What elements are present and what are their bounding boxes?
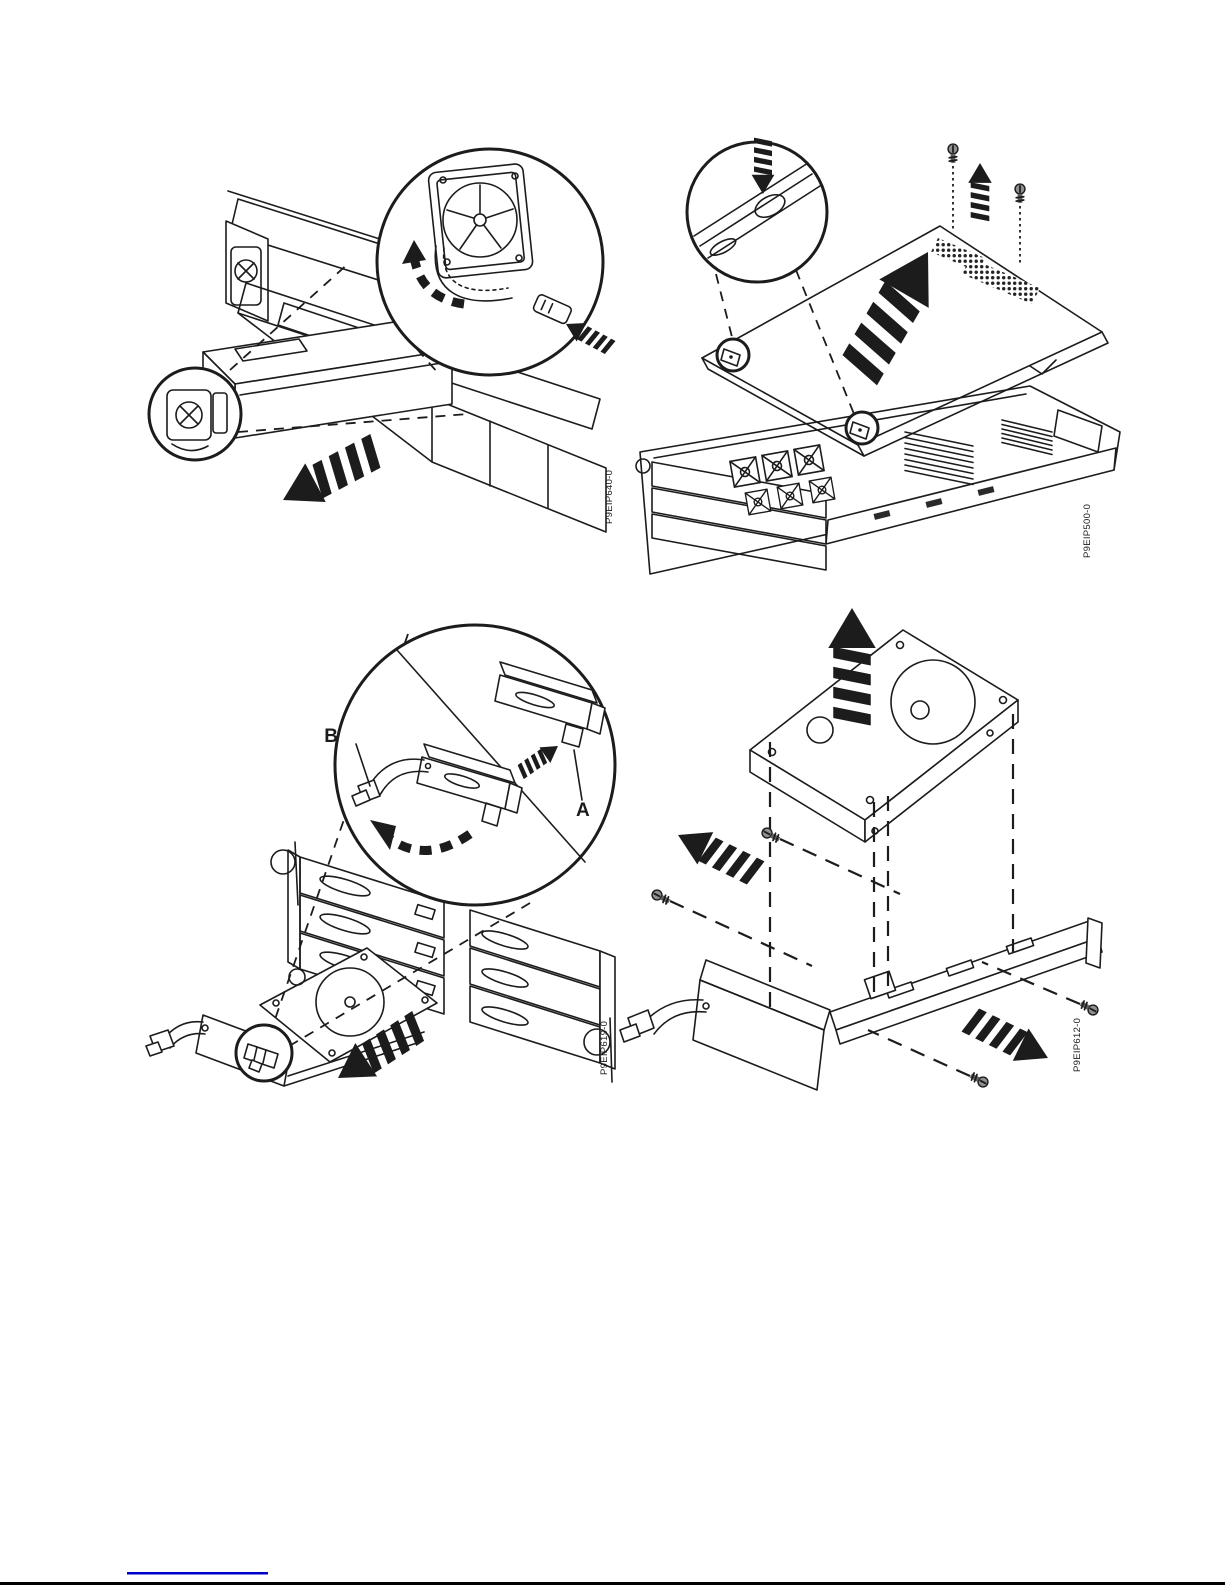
screw-icon [948, 144, 958, 163]
fan-icon [777, 483, 803, 509]
fan-icon [730, 457, 760, 487]
footer-link-line[interactable] [127, 1572, 268, 1575]
screw-icon [969, 1071, 990, 1089]
latch-highlight-circle [236, 1025, 292, 1081]
figure-id-label: P9EIP500-0 [1082, 504, 1093, 558]
callout-dashed-line [796, 270, 854, 414]
carrier-side-rail [830, 920, 1098, 1030]
cover-button-highlight-circle [717, 339, 749, 371]
drive-carrier-tray [620, 918, 1102, 1090]
screw-icon [760, 826, 781, 844]
screw-dashed-line [670, 901, 812, 966]
cover-button-highlight-circle [846, 412, 878, 444]
callout-dashed-line [716, 274, 733, 341]
drive-cage-grille [432, 398, 606, 532]
ac-inlet-icon [213, 393, 227, 433]
psu-handle-magnifier-circle [377, 149, 617, 375]
fan-icon [762, 451, 792, 481]
figure-id-label: P9EIP612-0 [1072, 1018, 1083, 1072]
figure-cover-removal: P9EIP500-0 [636, 138, 1120, 574]
screw-icon [650, 888, 671, 906]
cover-notch [1030, 360, 1056, 374]
disk-drive [750, 630, 1018, 842]
figure-id-label: P9EIP619-0 [599, 1021, 610, 1075]
cover-button-magnifier-circle [687, 138, 827, 282]
psu-rear-detail-circle [149, 368, 241, 460]
screw-icon [1079, 999, 1100, 1017]
screw-icon [1015, 184, 1025, 203]
fan-icon [745, 489, 771, 515]
figure-drive-carrier: P9EIP612-0 [620, 608, 1102, 1090]
callout-b-label: B [324, 726, 338, 747]
figure-drive-removal: A B P9EIP619-0 [146, 625, 615, 1095]
screw-removal-arrow [670, 819, 766, 891]
figure-id-label: P9EIP640-0 [604, 470, 615, 524]
figure-power-supply-removal: P9EIP640-0 [149, 149, 617, 532]
server-chassis-1u [636, 386, 1120, 574]
rail-end-post [1086, 918, 1102, 968]
removed-disk-drive [146, 948, 437, 1086]
fan-icon [794, 445, 824, 475]
screw-dashed-line [780, 839, 900, 894]
screw-dashed-line [868, 1030, 970, 1076]
callout-a-label: A [576, 800, 590, 821]
figures-canvas: P9EIP640-0 [0, 0, 1225, 1585]
cover-vent-stipple [962, 258, 1040, 304]
fan-icon [809, 477, 835, 503]
drive-bay-front-right-block [470, 910, 615, 1069]
manual-page: P9EIP640-0 [0, 0, 1225, 1585]
screw-removal-arrow [960, 1003, 1056, 1075]
cover-slide-arrow [833, 238, 953, 389]
removal-direction-arrow [273, 430, 389, 519]
lift-direction-arrow [968, 163, 992, 221]
latch-magnifier-circle: A B [324, 625, 615, 905]
